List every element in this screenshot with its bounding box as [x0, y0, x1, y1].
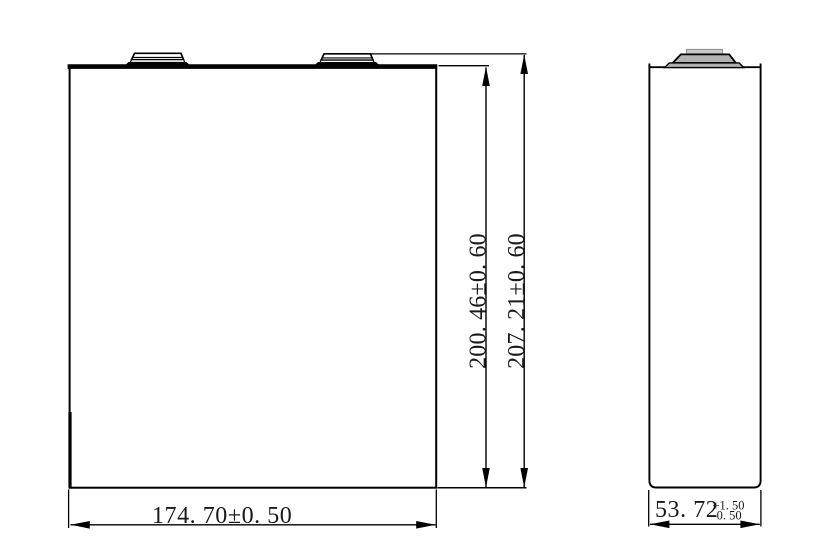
- svg-text:207. 21±0. 60: 207. 21±0. 60: [504, 233, 530, 369]
- svg-text:174. 70±0. 50: 174. 70±0. 50: [152, 503, 292, 529]
- svg-text:-0. 50: -0. 50: [713, 509, 742, 523]
- svg-text:200. 46±0. 60: 200. 46±0. 60: [466, 233, 492, 369]
- svg-text:53. 72: 53. 72: [655, 497, 718, 523]
